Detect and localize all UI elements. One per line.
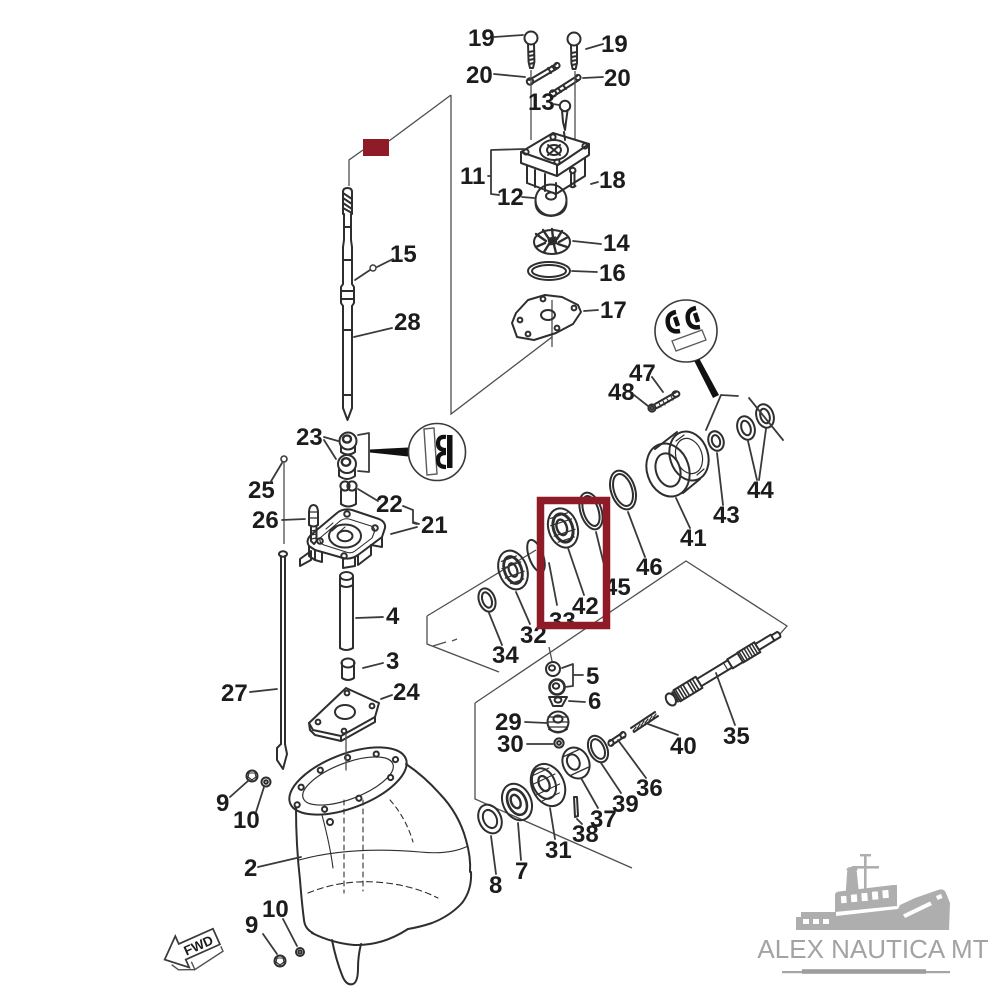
svg-text:8: 8	[489, 872, 502, 899]
svg-text:27: 27	[221, 680, 248, 707]
svg-text:23: 23	[296, 424, 323, 451]
svg-text:26: 26	[252, 507, 279, 534]
svg-text:13: 13	[528, 89, 555, 116]
svg-text:44: 44	[747, 477, 774, 504]
svg-text:48: 48	[608, 379, 635, 406]
svg-text:20: 20	[604, 65, 631, 92]
svg-text:35: 35	[723, 723, 750, 750]
svg-text:41: 41	[680, 525, 707, 552]
svg-text:28: 28	[394, 309, 421, 336]
svg-text:34: 34	[492, 642, 519, 669]
svg-text:9: 9	[216, 790, 229, 817]
svg-text:21: 21	[421, 512, 448, 539]
svg-text:24: 24	[393, 679, 420, 706]
svg-text:17: 17	[600, 297, 627, 324]
svg-text:6: 6	[588, 688, 601, 715]
svg-text:40: 40	[670, 733, 697, 760]
svg-text:43: 43	[713, 502, 740, 529]
svg-text:30: 30	[497, 731, 524, 758]
svg-text:39: 39	[612, 791, 639, 818]
svg-text:3: 3	[386, 648, 399, 675]
svg-text:42: 42	[572, 593, 599, 620]
svg-text:11: 11	[460, 163, 485, 190]
svg-text:14: 14	[603, 230, 630, 257]
svg-text:5: 5	[586, 663, 599, 690]
svg-text:19: 19	[601, 31, 628, 58]
svg-text:36: 36	[636, 775, 663, 802]
svg-text:10: 10	[262, 896, 289, 923]
svg-text:15: 15	[390, 241, 417, 268]
svg-text:18: 18	[599, 167, 626, 194]
svg-text:16: 16	[599, 260, 626, 287]
svg-text:12: 12	[497, 184, 524, 211]
svg-text:31: 31	[545, 837, 572, 864]
svg-text:ALEX NAUTICA MT: ALEX NAUTICA MT	[757, 934, 988, 964]
svg-text:7: 7	[515, 858, 528, 885]
svg-text:4: 4	[386, 603, 400, 630]
svg-text:20: 20	[466, 62, 493, 89]
svg-text:19: 19	[468, 25, 495, 52]
svg-text:2: 2	[244, 855, 257, 882]
svg-text:46: 46	[636, 554, 663, 581]
svg-text:22: 22	[376, 491, 403, 518]
svg-text:9: 9	[245, 912, 258, 939]
